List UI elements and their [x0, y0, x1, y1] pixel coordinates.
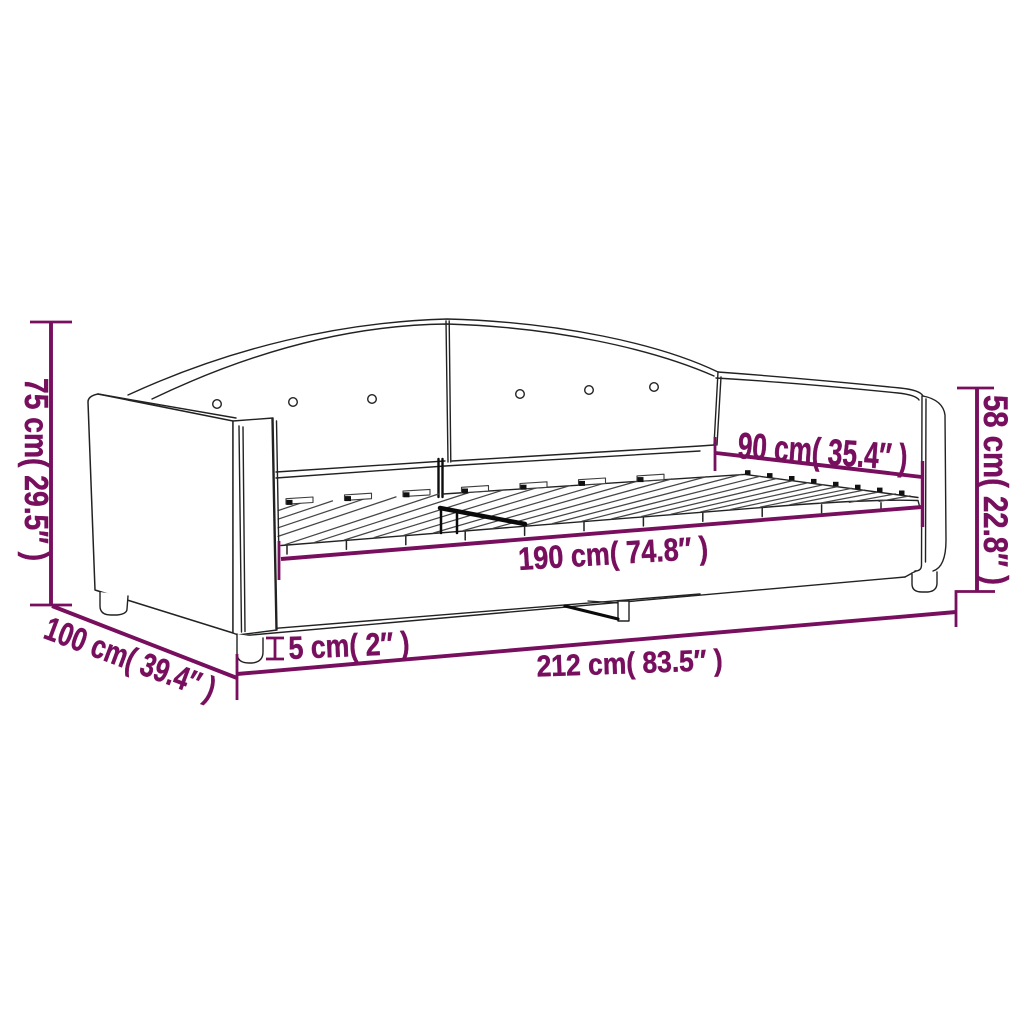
svg-text:75 cm( 29.5″ ): 75 cm( 29.5″ ): [18, 378, 55, 561]
svg-text:5 cm( 2″ ): 5 cm( 2″ ): [288, 625, 410, 666]
svg-text:58 cm( 22.8″ ): 58 cm( 22.8″ ): [976, 395, 1014, 585]
svg-text:212 cm( 83.5″ ): 212 cm( 83.5″ ): [536, 644, 723, 683]
